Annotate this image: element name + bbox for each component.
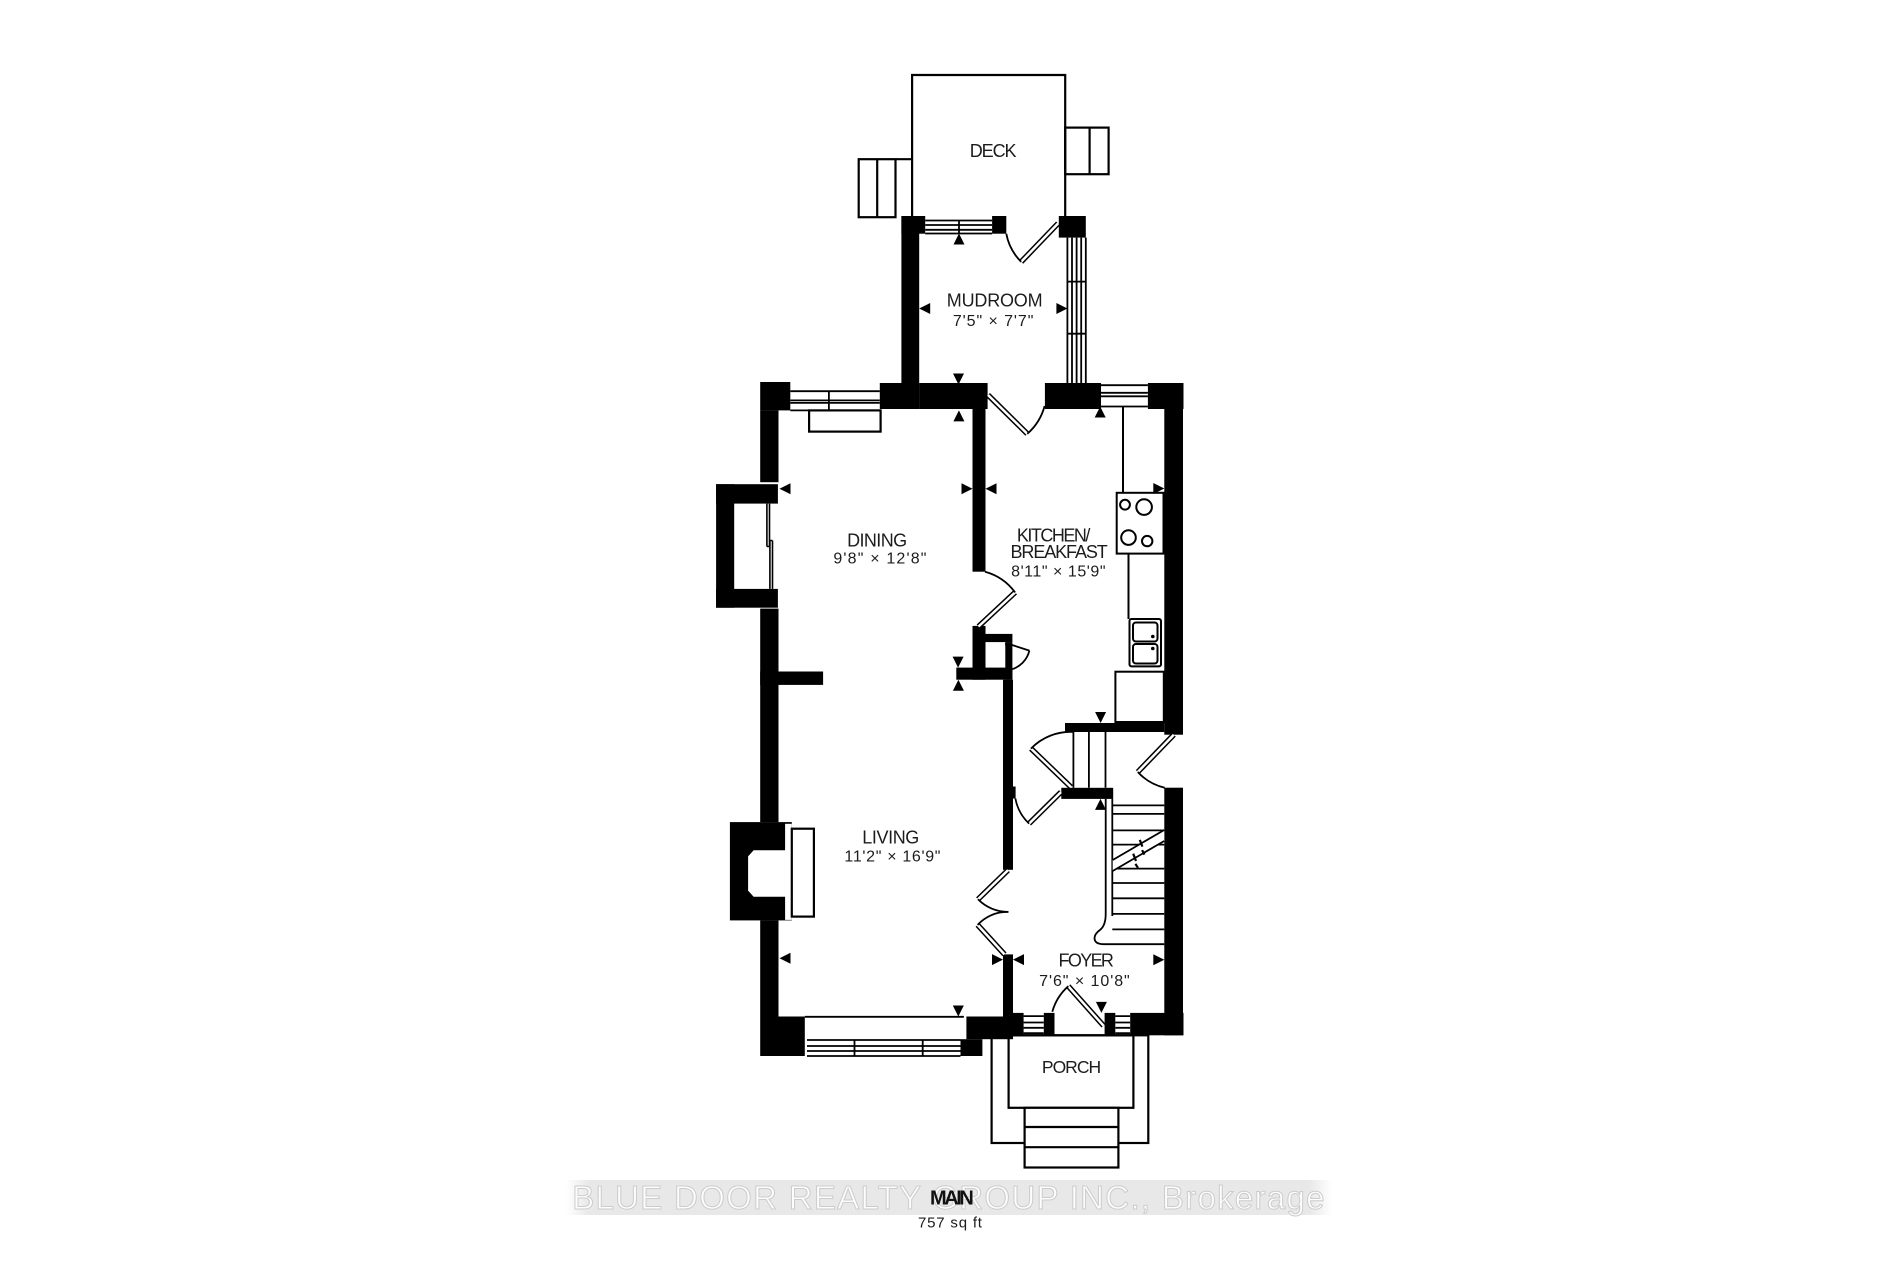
svg-text:PORCH: PORCH	[1042, 1057, 1101, 1077]
svg-text:7'5" × 7'7": 7'5" × 7'7"	[953, 313, 1035, 330]
svg-text:LIVING: LIVING	[862, 828, 919, 848]
svg-text:DINING: DINING	[847, 531, 906, 551]
svg-text:9'8" × 12'8": 9'8" × 12'8"	[833, 550, 927, 567]
svg-text:8'11" × 15'9": 8'11" × 15'9"	[1011, 563, 1106, 580]
svg-text:FOYER: FOYER	[1059, 950, 1114, 970]
svg-text:757 sq ft: 757 sq ft	[918, 1215, 983, 1232]
svg-text:11'2" × 16'9": 11'2" × 16'9"	[844, 848, 941, 865]
svg-text:DECK: DECK	[970, 141, 1017, 161]
svg-text:7'6" × 10'8": 7'6" × 10'8"	[1039, 973, 1131, 990]
svg-text:MUDROOM: MUDROOM	[947, 291, 1043, 311]
svg-text:MAIN: MAIN	[930, 1188, 973, 1210]
svg-text:BREAKFAST: BREAKFAST	[1011, 542, 1108, 562]
